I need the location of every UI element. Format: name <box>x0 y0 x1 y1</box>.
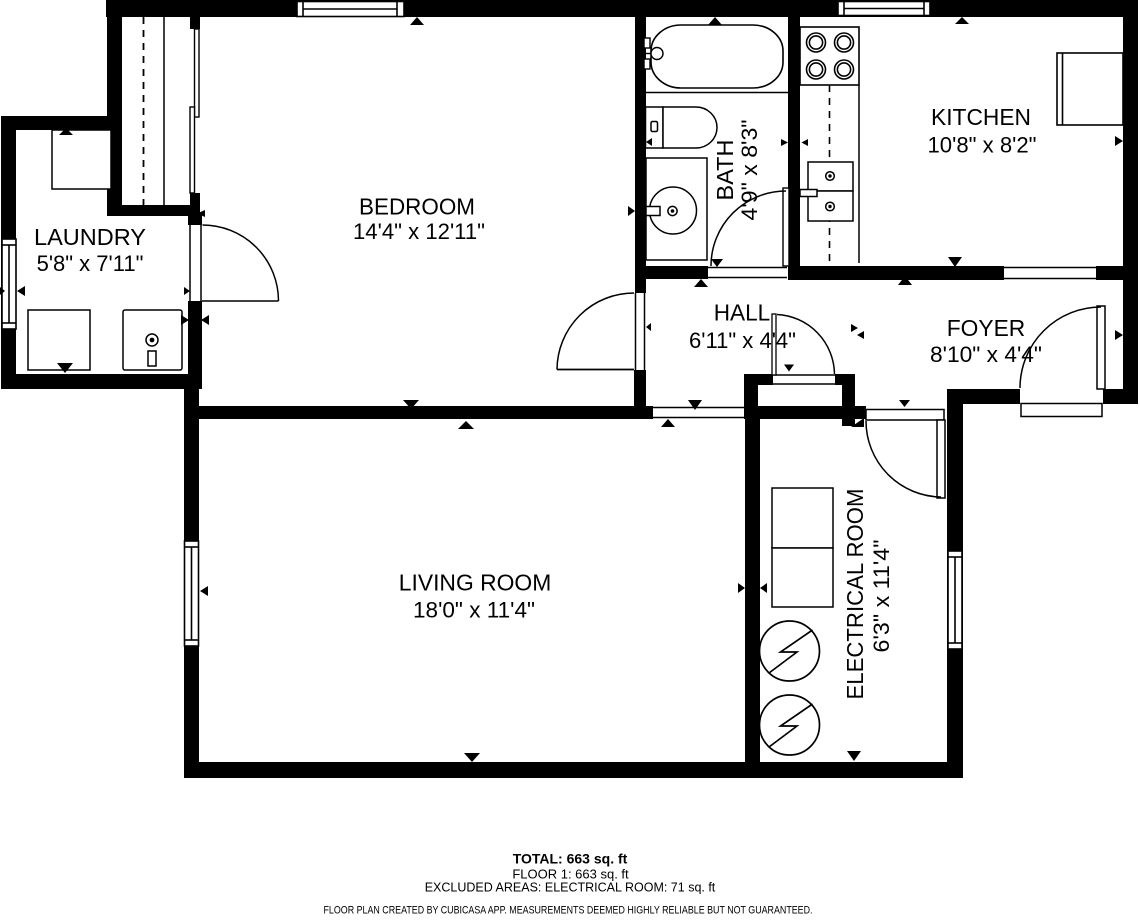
svg-text:4'9" x 8'3": 4'9" x 8'3" <box>737 120 762 221</box>
svg-text:18'0" x 11'4": 18'0" x 11'4" <box>413 598 535 623</box>
svg-text:FLOOR 1: 663 sq. ft: FLOOR 1: 663 sq. ft <box>512 867 629 882</box>
svg-text:HALL: HALL <box>714 300 771 326</box>
svg-text:8'10" x 4'4": 8'10" x 4'4" <box>930 342 1042 367</box>
svg-text:5'8" x 7'11": 5'8" x 7'11" <box>37 251 144 276</box>
svg-text:KITCHEN: KITCHEN <box>931 104 1031 130</box>
svg-text:TOTAL: 663 sq. ft: TOTAL: 663 sq. ft <box>513 851 628 867</box>
svg-text:BEDROOM: BEDROOM <box>359 194 475 220</box>
svg-text:FLOOR PLAN CREATED BY CUBICASA: FLOOR PLAN CREATED BY CUBICASA APP. MEAS… <box>324 905 813 917</box>
svg-text:LIVING ROOM: LIVING ROOM <box>399 570 552 596</box>
svg-text:BATH: BATH <box>712 140 738 201</box>
svg-text:14'4" x 12'11": 14'4" x 12'11" <box>353 219 485 244</box>
svg-text:FOYER: FOYER <box>947 315 1026 341</box>
svg-text:EXCLUDED AREAS: ELECTRICAL ROO: EXCLUDED AREAS: ELECTRICAL ROOM: 71 sq. … <box>425 881 716 895</box>
svg-text:10'8" x 8'2": 10'8" x 8'2" <box>928 133 1037 158</box>
svg-text:6'3" x 11'4": 6'3" x 11'4" <box>869 540 894 653</box>
svg-text:LAUNDRY: LAUNDRY <box>34 224 146 250</box>
svg-text:6'11" x 4'4": 6'11" x 4'4" <box>689 328 796 353</box>
svg-text:ELECTRICAL ROOM: ELECTRICAL ROOM <box>842 489 868 700</box>
